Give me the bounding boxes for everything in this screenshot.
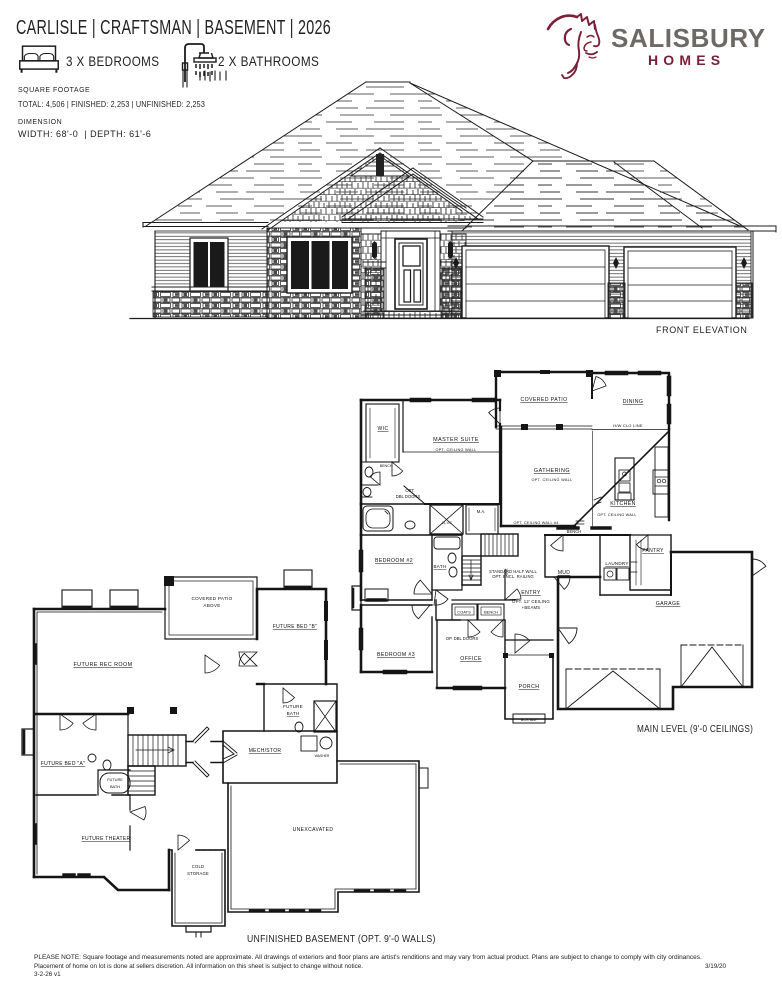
svg-text:KITCHEN: KITCHEN: [610, 501, 636, 507]
svg-text:OP. DBL DOORS: OP. DBL DOORS: [446, 636, 479, 641]
svg-text:H/W CLG LINE: H/W CLG LINE: [613, 423, 643, 428]
svg-text:COATS: COATS: [457, 610, 471, 615]
svg-text:WIC: WIC: [378, 426, 389, 432]
svg-text:BATH: BATH: [110, 784, 120, 789]
svg-text:BENCH: BENCH: [567, 529, 582, 534]
svg-text:FUTURE: FUTURE: [107, 777, 123, 782]
svg-text:BENCH: BENCH: [380, 464, 393, 468]
svg-text:FUTURE BED "B": FUTURE BED "B": [273, 624, 317, 630]
svg-text:LAUNDRY: LAUNDRY: [605, 561, 628, 566]
svg-text:OPT. CEILING WALL: OPT. CEILING WALL: [531, 478, 572, 482]
svg-text:BATH: BATH: [287, 711, 300, 716]
svg-text:DBL DOORS: DBL DOORS: [396, 494, 421, 499]
svg-text:GARAGE: GARAGE: [656, 601, 681, 607]
svg-text:OPT. CEILING WALL #4: OPT. CEILING WALL #4: [513, 521, 558, 525]
svg-text:OPT. CEILING WALL: OPT. CEILING WALL: [435, 448, 476, 452]
svg-text:COVERED PATIO: COVERED PATIO: [520, 397, 567, 403]
svg-text:+BEAMS: +BEAMS: [522, 605, 541, 610]
svg-text:MECH/STOR: MECH/STOR: [249, 748, 282, 754]
svg-text:MUD: MUD: [558, 570, 570, 576]
svg-text:WASHER: WASHER: [315, 754, 330, 758]
svg-text:OPT.: OPT.: [405, 488, 414, 493]
svg-text:FUTURE BED "A": FUTURE BED "A": [41, 761, 85, 767]
svg-text:STORAGE: STORAGE: [187, 871, 209, 876]
svg-text:ENTRY: ENTRY: [521, 590, 541, 596]
svg-text:OFFICE: OFFICE: [460, 656, 482, 662]
svg-text:FUTURE THEATER: FUTURE THEATER: [82, 836, 131, 842]
svg-text:FUTURE REC ROOM: FUTURE REC ROOM: [73, 662, 132, 668]
svg-text:BOX BAY: BOX BAY: [521, 718, 538, 722]
svg-text:DINING: DINING: [623, 399, 644, 405]
svg-text:MASTER SUITE: MASTER SUITE: [433, 437, 479, 443]
svg-text:PANTRY: PANTRY: [642, 548, 664, 554]
svg-text:OPT. ENCL. RAILING: OPT. ENCL. RAILING: [492, 574, 534, 579]
svg-text:HOMES: HOMES: [648, 52, 725, 68]
svg-text:OPT. 12' CEILING: OPT. 12' CEILING: [512, 599, 550, 604]
svg-text:COVERED PATIO: COVERED PATIO: [192, 596, 233, 601]
svg-text:PORCH: PORCH: [519, 684, 540, 690]
svg-text:D-VS: D-VS: [442, 520, 452, 525]
svg-text:SALISBURY: SALISBURY: [611, 23, 766, 53]
svg-text:COLD: COLD: [192, 864, 204, 869]
svg-text:BENCH: BENCH: [484, 610, 498, 615]
svg-text:GATHERING: GATHERING: [534, 468, 570, 474]
svg-text:ABOVE: ABOVE: [203, 603, 220, 608]
svg-text:OPT. CEILING WALL: OPT. CEILING WALL: [597, 513, 636, 517]
svg-text:M.A.: M.A.: [477, 509, 486, 514]
svg-text:UNEXCAVATED: UNEXCAVATED: [293, 827, 334, 833]
svg-text:FUTURE: FUTURE: [283, 704, 303, 709]
